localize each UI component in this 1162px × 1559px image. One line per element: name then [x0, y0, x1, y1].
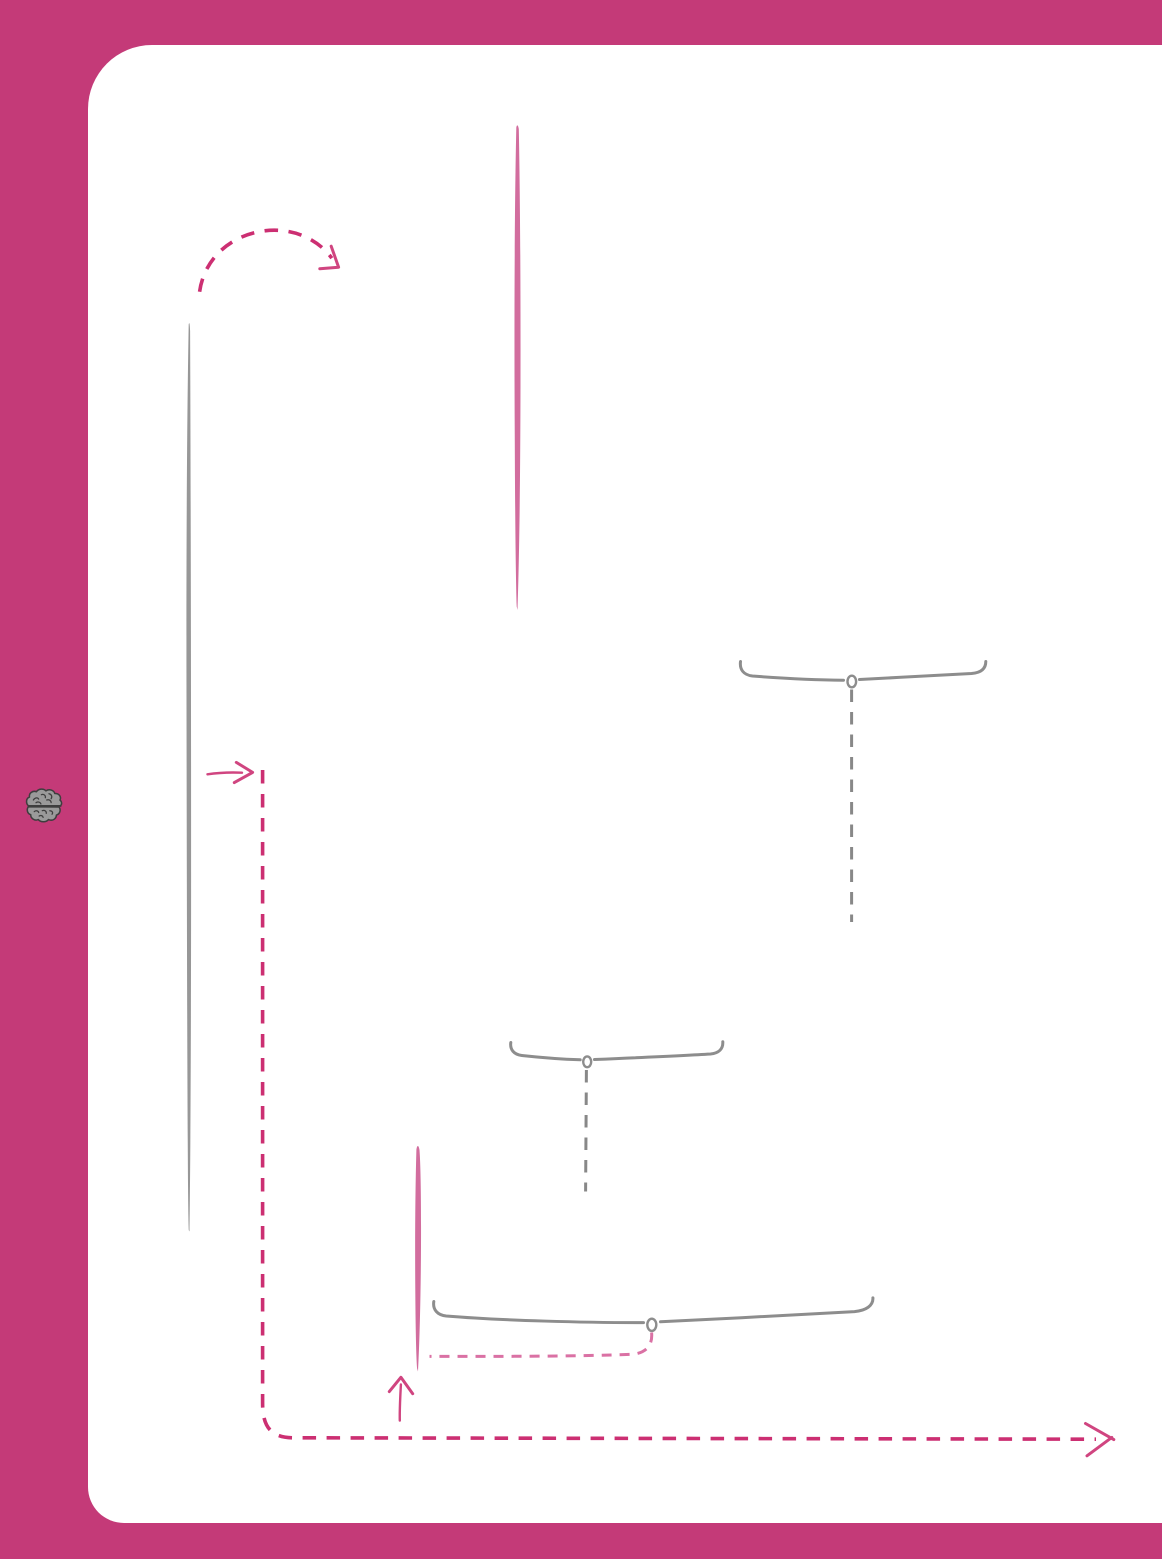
top-brace-loop — [848, 676, 857, 688]
pink-marker-line-top — [514, 125, 520, 610]
bottom-brace-loop — [647, 1319, 656, 1331]
bottom-brace-dashed-leader — [430, 1333, 652, 1357]
curved-dashed-arrow-arc — [200, 230, 332, 292]
top-brace — [740, 662, 985, 681]
pink-marker-line-bottom — [415, 1146, 421, 1371]
page-canvas — [0, 0, 1162, 1559]
pink-dashed-route-arrow-head — [1086, 1424, 1114, 1456]
annotation-overlay — [0, 0, 1162, 1559]
gray-marker-line — [186, 323, 191, 1231]
up-arrow-shaft — [400, 1385, 401, 1421]
brain-bottom-lobe — [27, 807, 60, 822]
right-arrow-shaft — [208, 772, 243, 774]
pink-dashed-route — [263, 770, 1096, 1439]
brain-top-lobe — [27, 789, 62, 806]
middle-brace-loop — [583, 1056, 591, 1067]
middle-brace-dashed-leader — [586, 1070, 587, 1192]
middle-brace — [511, 1042, 723, 1060]
brain-icon — [27, 789, 62, 822]
